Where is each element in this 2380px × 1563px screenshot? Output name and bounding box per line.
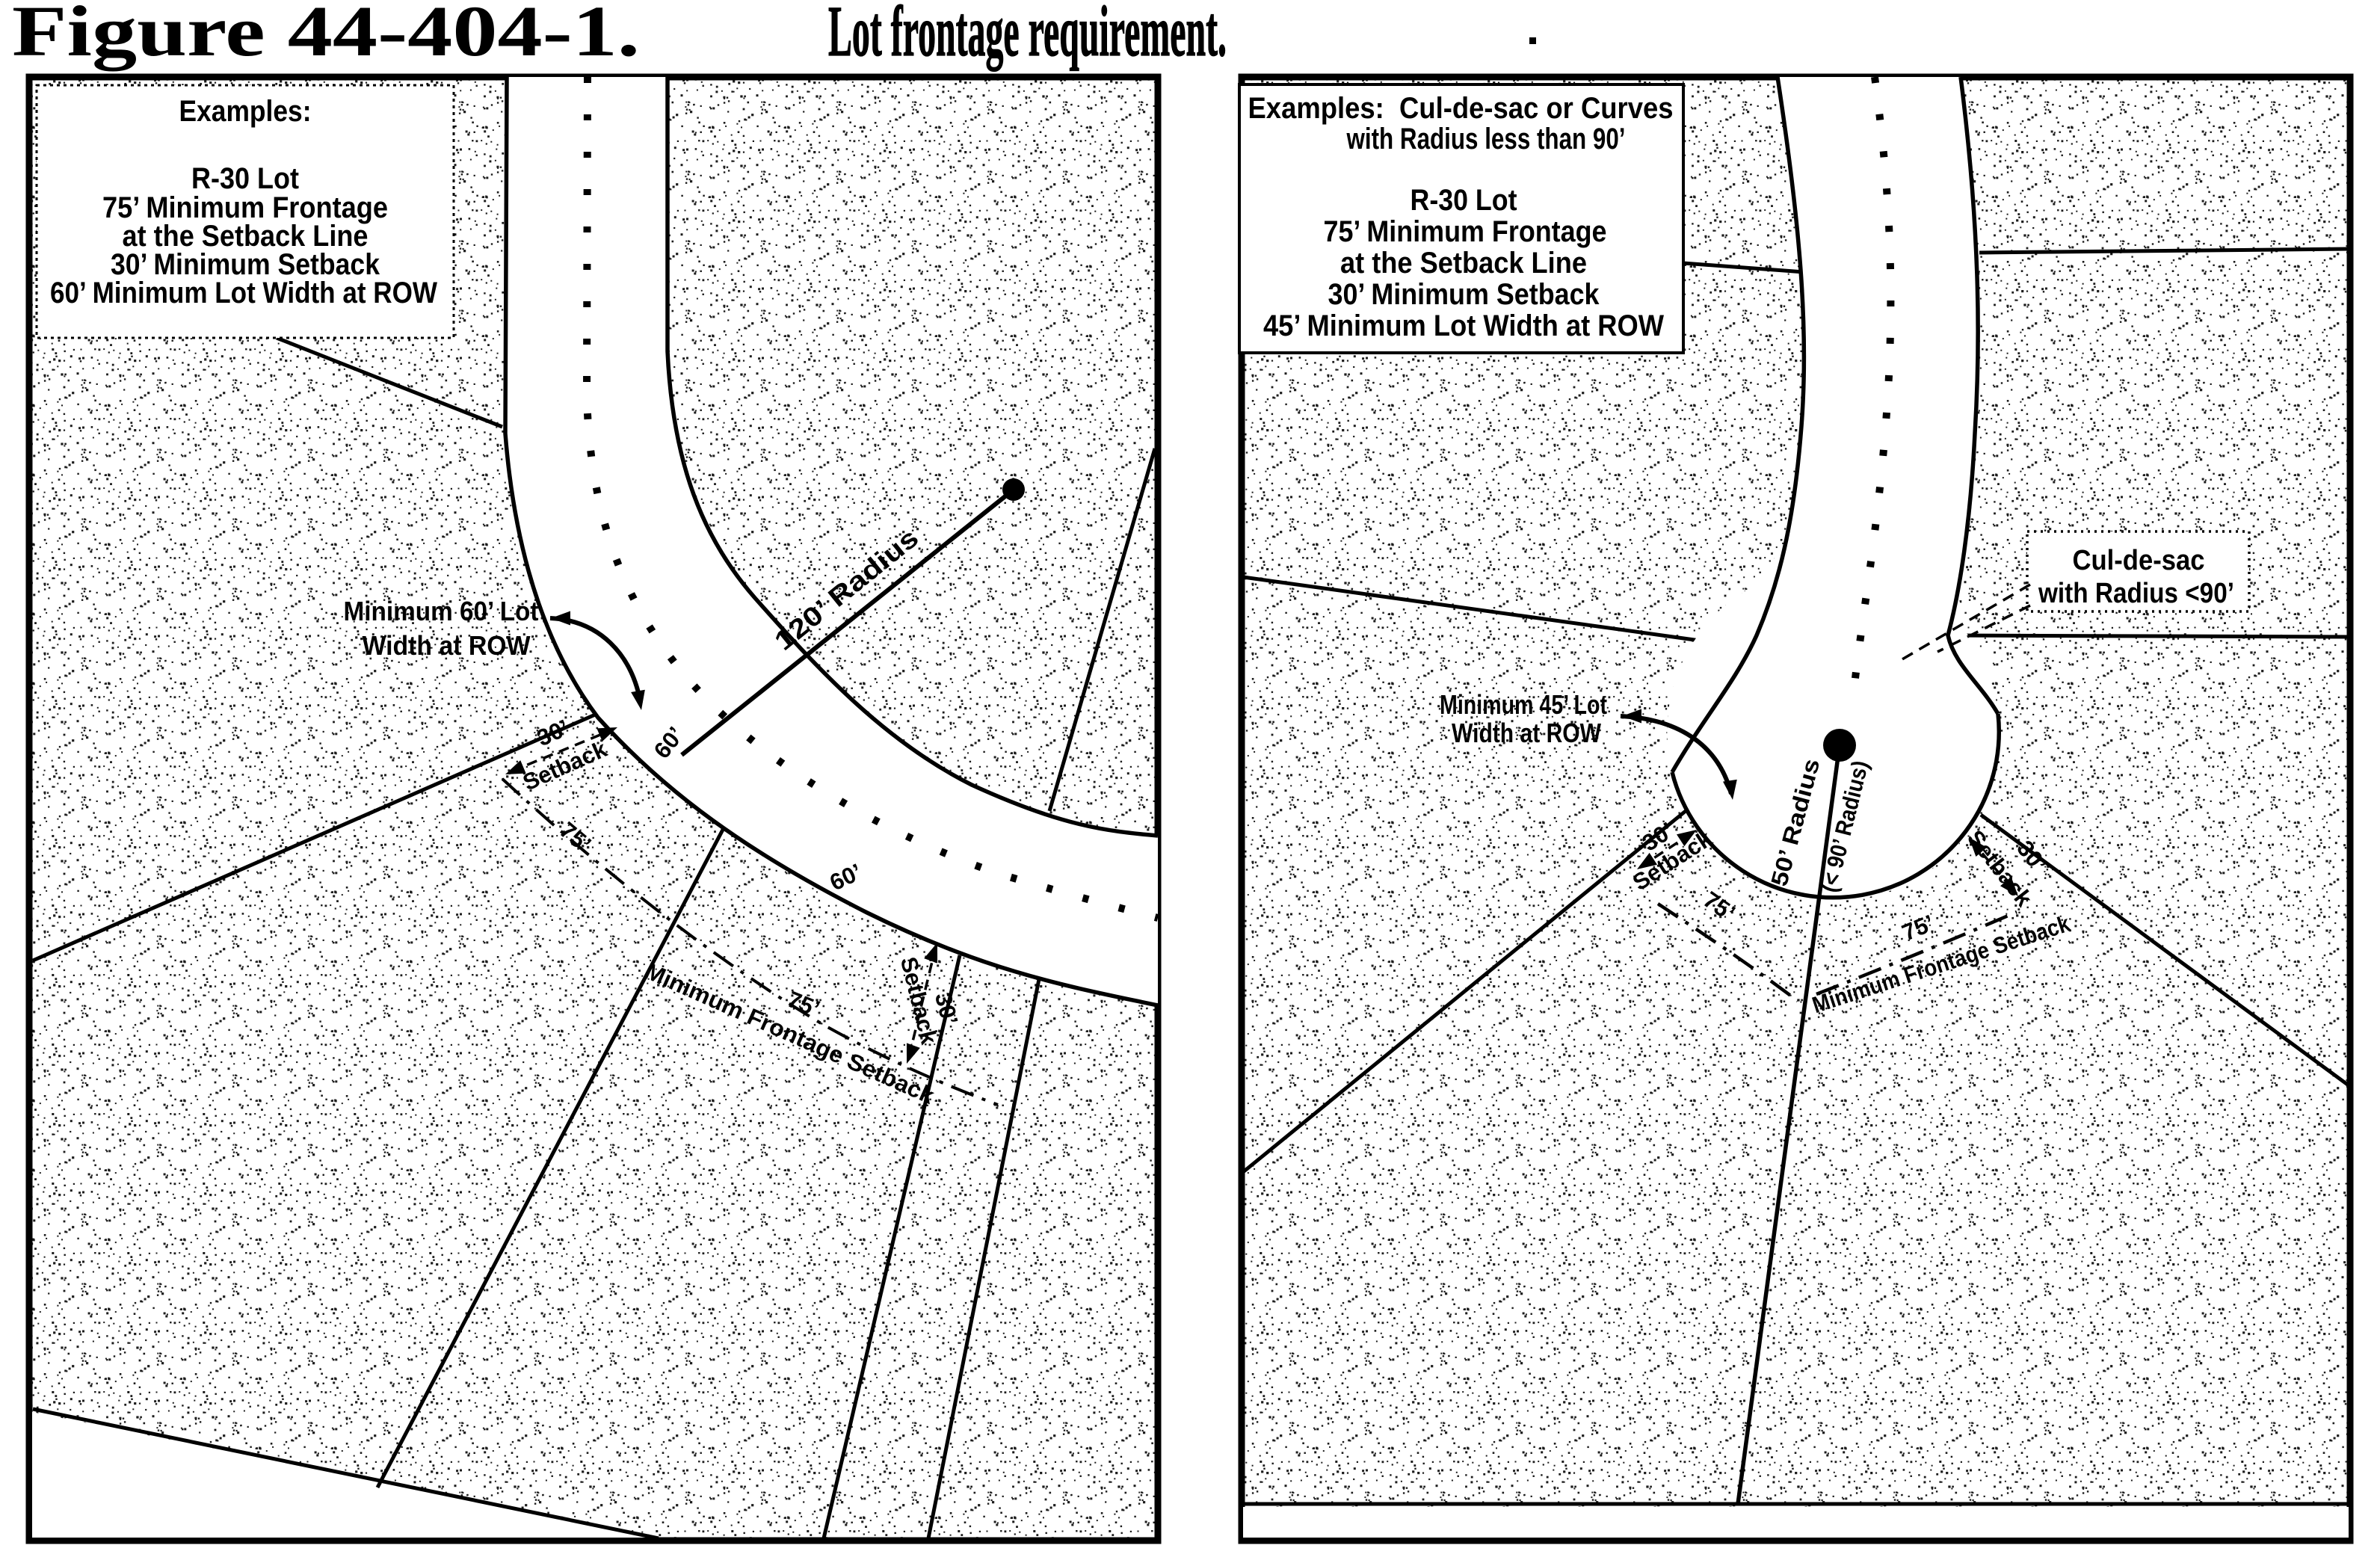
svg-text:R-30 Lot: R-30 Lot — [1411, 184, 1517, 217]
svg-text:Examples:: Examples: — [179, 95, 312, 128]
svg-text:Width at ROW: Width at ROW — [1452, 718, 1601, 748]
svg-text:with Radius <90’: with Radius <90’ — [2038, 578, 2234, 609]
svg-text:45’ Minimum Lot Width at ROW: 45’ Minimum Lot Width at ROW — [1263, 309, 1664, 342]
svg-text:Figure 44-404-1.: Figure 44-404-1. — [12, 0, 640, 71]
svg-text:Examples: Cul-de-sac or Curve: Examples: Cul-de-sac or Curves — [1248, 92, 1674, 125]
svg-text:Width at ROW: Width at ROW — [363, 630, 531, 661]
svg-text:Lot frontage requirement.: Lot frontage requirement. — [828, 0, 1227, 71]
svg-text:at the Setback Line: at the Setback Line — [1340, 247, 1587, 280]
svg-text:Minimum 45’ Lot: Minimum 45’ Lot — [1440, 689, 1607, 720]
svg-text:Minimum 60’ Lot: Minimum 60’ Lot — [344, 596, 539, 626]
svg-text:30’ Minimum Setback: 30’ Minimum Setback — [1328, 278, 1600, 311]
svg-text:with Radius less than 90’: with Radius less than 90’ — [1346, 123, 1626, 155]
svg-text:Cul-de-sac: Cul-de-sac — [2073, 545, 2205, 576]
svg-text:75’ Minimum Frontage: 75’ Minimum Frontage — [1324, 215, 1607, 248]
svg-text:60’ Minimum Lot Width at ROW: 60’ Minimum Lot Width at ROW — [50, 277, 437, 309]
svg-text:R-30 Lot: R-30 Lot — [191, 162, 299, 195]
